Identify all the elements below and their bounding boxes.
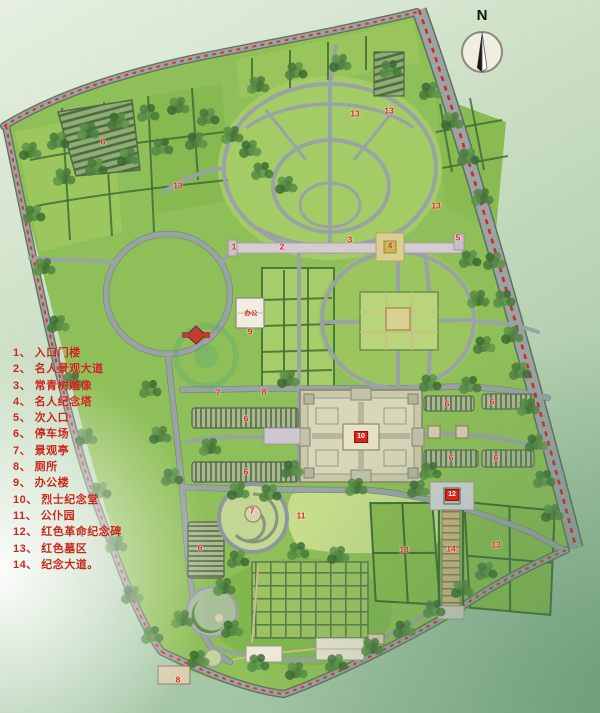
legend-item: 6、 停车场 <box>13 426 122 442</box>
legend-item: 13、 红色墓区 <box>13 541 122 557</box>
legend-item: 1、 入口门楼 <box>13 345 122 361</box>
legend-item: 3、 常青树雕像 <box>13 378 122 394</box>
legend-item: 12、 红色革命纪念碑 <box>13 524 122 540</box>
north-arrow: N <box>450 8 514 84</box>
legend-item: 14、 纪念大道。 <box>13 557 122 573</box>
legend-item: 10、 烈士纪念堂 <box>13 492 122 508</box>
office-building-label: 办公 <box>245 307 258 317</box>
site-plan-page: 1、 入口门楼2、 名人景观大道3、 常青树雕像4、 名人纪念塔5、 次入口6、… <box>0 0 600 713</box>
formal-square-garden <box>360 292 438 350</box>
compass-icon <box>450 24 514 80</box>
legend-item: 8、 厕所 <box>13 459 122 475</box>
legend-item: 2、 名人景观大道 <box>13 361 122 377</box>
legend-list: 1、 入口门楼2、 名人景观大道3、 常青树雕像4、 名人纪念塔5、 次入口6、… <box>13 345 122 573</box>
legend-item: 5、 次入口 <box>13 410 122 426</box>
legend-item: 11、 公仆园 <box>13 508 122 524</box>
legend-item: 4、 名人纪念塔 <box>13 394 122 410</box>
north-label: N <box>450 8 514 24</box>
legend-item: 9、 办公楼 <box>13 475 122 491</box>
legend-item: 7、 景观亭 <box>13 443 122 459</box>
